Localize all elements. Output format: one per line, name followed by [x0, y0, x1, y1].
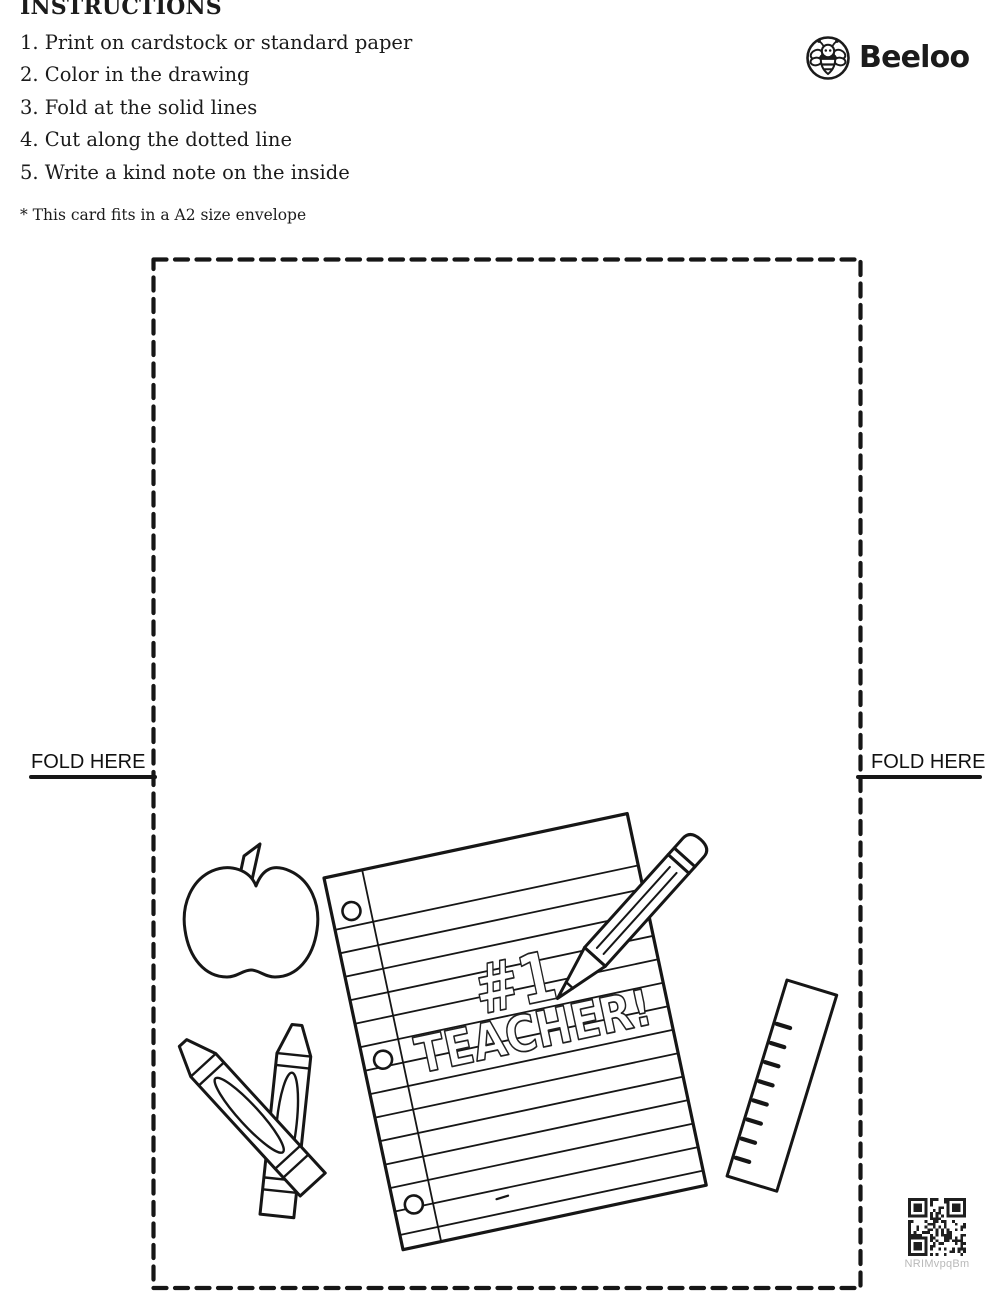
qr-label: NRIMvpqBm	[877, 1258, 997, 1270]
fold-here-label-left: FOLD HERE	[31, 751, 143, 774]
qr-code	[908, 1198, 966, 1256]
printable-card-page: INSTRUCTIONS 1. Print on cardstock or st…	[0, 0, 1000, 1294]
card-artwork: #1 TEACHER!	[0, 0, 1000, 1294]
fold-here-label-right: FOLD HERE	[871, 751, 981, 774]
ruler-drawing	[727, 980, 837, 1191]
apple-drawing	[184, 844, 318, 977]
qr-block: NRIMvpqBm	[908, 1198, 966, 1256]
